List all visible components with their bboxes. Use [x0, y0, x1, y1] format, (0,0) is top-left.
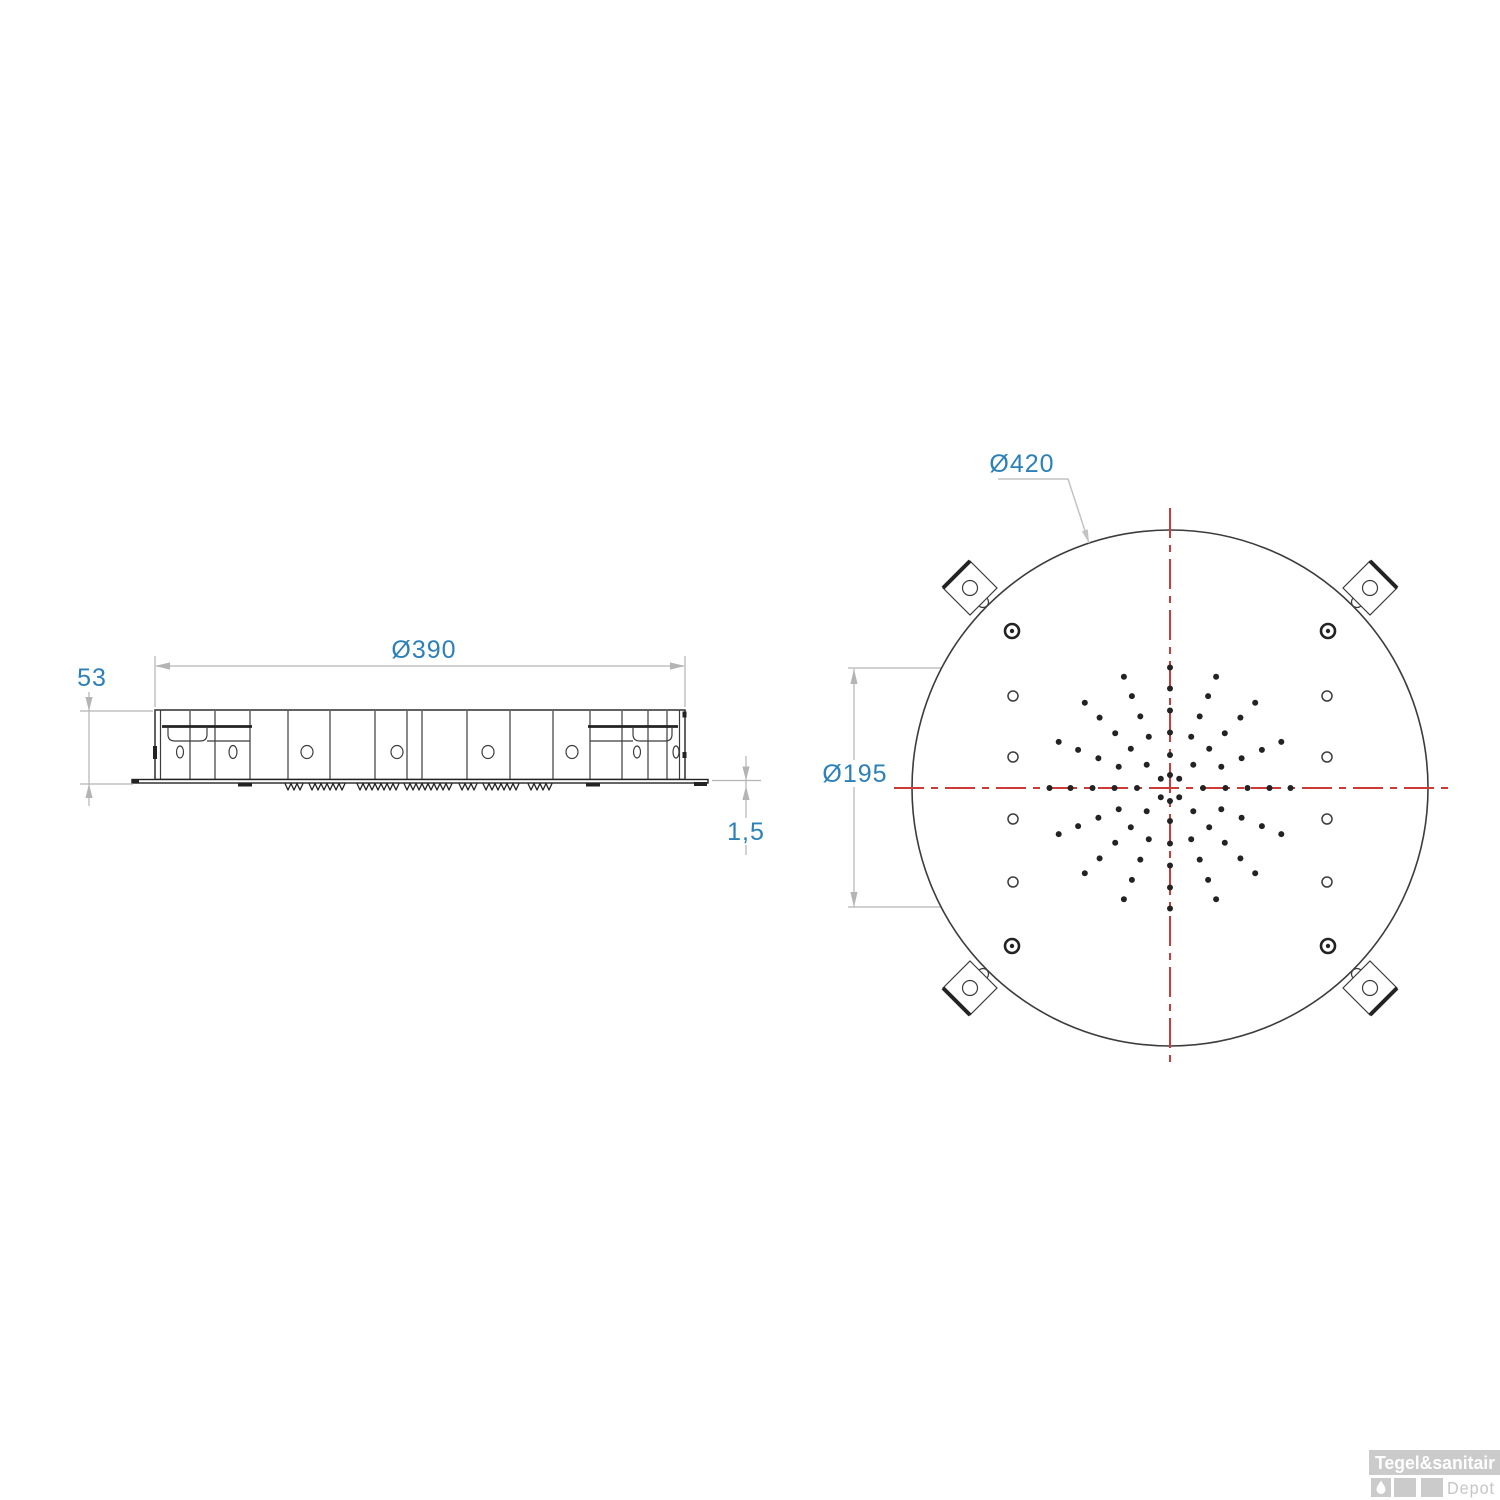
nozzle-dot — [1223, 785, 1229, 791]
watermark-brand: Tegel&sanitair — [1375, 1453, 1495, 1473]
flange-plate — [132, 780, 708, 784]
nozzle-tooth — [333, 784, 339, 791]
dim-height: 53 — [77, 664, 153, 806]
nozzle-dot — [1188, 734, 1194, 740]
nozzle-dot — [1144, 762, 1150, 768]
rivet-hole — [566, 746, 578, 759]
nozzle-tooth — [495, 784, 501, 791]
wall-tick-right — [683, 752, 687, 758]
nozzle-dot — [1237, 715, 1243, 721]
nozzle-dot — [1134, 785, 1140, 791]
nozzle-dot — [1146, 836, 1152, 842]
screw-hole — [1008, 877, 1018, 887]
dim-arrow-top — [742, 767, 749, 781]
dim-outer: Ø420 — [989, 450, 1089, 543]
rivet-hole — [177, 746, 184, 758]
nozzle-dot — [1239, 755, 1245, 761]
nozzle-dot — [1259, 747, 1265, 753]
watermark: Tegel&sanitair Depot — [1369, 1450, 1500, 1498]
dim-pattern: Ø195 — [820, 669, 890, 907]
nozzle-dot — [1112, 785, 1118, 791]
drawing-page: Ø390 53 1,5 — [0, 0, 1500, 1500]
nozzle-dot — [1288, 785, 1294, 791]
nozzle-dot — [1116, 764, 1122, 770]
nozzle-dot — [1213, 674, 1219, 680]
dim-arrow-bottom — [742, 786, 749, 800]
nozzle-dot — [1267, 785, 1273, 791]
fixing-hole-center — [1326, 944, 1330, 948]
nozzle-dot — [1245, 785, 1251, 791]
nozzle-dot — [1167, 863, 1173, 869]
nozzle-tooth — [285, 784, 291, 791]
nozzle-dot — [1218, 764, 1224, 770]
nozzle-dot — [1167, 818, 1173, 824]
rivet-hole — [482, 746, 494, 759]
nozzle-tooth — [363, 784, 369, 791]
screw-hole — [1008, 752, 1018, 762]
nozzle-tooth — [297, 784, 303, 791]
nozzle-tooth — [489, 784, 495, 791]
wall-tick-right-top — [683, 712, 687, 718]
nozzle-dot — [1095, 815, 1101, 821]
nozzle-dot — [1082, 870, 1088, 876]
nozzle-dot — [1206, 746, 1212, 752]
bracket-hole — [1363, 581, 1378, 596]
nozzle-tooth — [507, 784, 513, 791]
nozzle-dot — [1075, 823, 1081, 829]
dim-plate-thickness: 1,5 — [712, 756, 765, 855]
nozzle-tooth — [315, 784, 321, 791]
nozzle-dot — [1128, 824, 1134, 830]
screw-hole — [1008, 691, 1018, 701]
nozzle-dot — [1116, 806, 1122, 812]
nozzle-tooth — [327, 784, 333, 791]
dim-arrow-right — [670, 662, 685, 669]
dim-width: Ø390 — [155, 636, 685, 707]
watermark-product-line: Depot — [1447, 1478, 1495, 1498]
nozzle-dot — [1112, 730, 1118, 736]
nozzle-dot — [1239, 815, 1245, 821]
nozzle-dot — [1197, 713, 1203, 719]
rivet-hole — [634, 746, 641, 758]
nozzle-tooth — [375, 784, 381, 791]
nozzle-dot — [1252, 870, 1258, 876]
nozzle-tooth — [459, 784, 465, 791]
fixing-hole-center — [1010, 944, 1014, 948]
dim-arrow-left — [155, 662, 170, 669]
flange-tip-left — [132, 780, 139, 784]
nozzle-dot — [1144, 808, 1150, 814]
nozzle-dot — [1167, 798, 1173, 804]
top-view: Ø195 Ø420 — [820, 450, 1449, 1068]
nozzle-tooth — [446, 784, 452, 791]
nozzle-dot — [1188, 836, 1194, 842]
nozzle-dot — [1137, 857, 1143, 863]
nozzle-tooth — [434, 784, 440, 791]
nozzle-dot — [1218, 806, 1224, 812]
nozzle-dot — [1129, 877, 1135, 883]
nozzle-dot — [1237, 855, 1243, 861]
nozzle-dot — [1097, 715, 1103, 721]
nozzle-dot — [1146, 734, 1152, 740]
nozzle-dot — [1158, 776, 1164, 782]
nozzle-dot — [1167, 686, 1173, 692]
nozzle-dot — [1137, 713, 1143, 719]
dim-plate-label: 1,5 — [727, 818, 765, 846]
nozzle-dot — [1213, 896, 1219, 902]
dim-width-label: Ø390 — [391, 636, 456, 664]
nozzle-tooth — [369, 784, 375, 791]
nozzle-dot — [1167, 772, 1173, 778]
nozzle-tooth — [483, 784, 489, 791]
nozzle-dot — [1278, 831, 1284, 837]
screw-hole — [1322, 814, 1332, 824]
nozzle-tooth — [357, 784, 363, 791]
nozzle-tooth — [513, 784, 519, 791]
nozzle-dot — [1068, 785, 1074, 791]
nozzle-dot — [1097, 855, 1103, 861]
watermark-square — [1421, 1478, 1443, 1497]
nozzle-dot — [1190, 808, 1196, 814]
nozzle-dot — [1121, 896, 1127, 902]
side-view: Ø390 53 1,5 — [77, 636, 765, 855]
nozzle-tooth — [393, 784, 399, 791]
nozzle-dot — [1056, 831, 1062, 837]
nozzle-dot — [1197, 857, 1203, 863]
nozzle-dot — [1047, 785, 1053, 791]
nozzle-tooth — [422, 784, 428, 791]
dim-height-label: 53 — [77, 664, 107, 692]
watermark-square — [1394, 1478, 1416, 1497]
nozzle-dot — [1222, 840, 1228, 846]
nozzle-dot — [1095, 755, 1101, 761]
nozzle-dot — [1278, 739, 1284, 745]
body-outline — [155, 710, 685, 780]
leader-line — [998, 479, 1089, 543]
rivet-hole — [673, 746, 679, 758]
nozzle-dot — [1167, 841, 1173, 847]
nozzle-dot — [1259, 823, 1265, 829]
flange-tab-right — [586, 783, 600, 787]
wall-tick-left — [153, 746, 157, 759]
screw-hole — [1008, 814, 1018, 824]
nozzle-dot — [1082, 700, 1088, 706]
nozzle-dot — [1167, 708, 1173, 714]
nozzle-dot — [1200, 785, 1206, 791]
dim-arrow-bottom — [85, 784, 92, 798]
nozzle-tooth — [387, 784, 393, 791]
rivet-hole — [301, 746, 313, 759]
nozzle-dot — [1205, 693, 1211, 699]
dim-pattern-label: Ø195 — [822, 760, 887, 788]
bracket-hole — [963, 581, 978, 596]
nozzle-tooth — [528, 784, 534, 791]
nozzle-dot — [1206, 824, 1212, 830]
nozzle-dot — [1112, 840, 1118, 846]
nozzle-dot — [1252, 700, 1258, 706]
nozzle-tooth — [410, 784, 416, 791]
nozzle-dot — [1090, 785, 1096, 791]
bracket-hole — [963, 981, 978, 996]
bracket-hole — [1363, 981, 1378, 996]
nozzle-tooth — [501, 784, 507, 791]
fixing-hole-center — [1010, 629, 1014, 633]
screw-hole — [1322, 877, 1332, 887]
nozzle-tooth — [404, 784, 410, 791]
nozzle-dot — [1222, 730, 1228, 736]
nozzle-dot — [1167, 665, 1173, 671]
nozzle-dot — [1075, 747, 1081, 753]
nozzle-dot — [1176, 794, 1182, 800]
rivet-hole — [229, 746, 237, 759]
dim-arrow-top — [85, 697, 92, 711]
nozzle-dot — [1129, 693, 1135, 699]
nozzle-tooth — [416, 784, 422, 791]
nozzle-dot — [1167, 752, 1173, 758]
nozzle-dot — [1167, 906, 1173, 912]
dim-arrow-top — [850, 669, 857, 684]
flange-tab-left — [238, 783, 252, 787]
nozzle-tooth — [534, 784, 540, 791]
nozzle-dot — [1056, 739, 1062, 745]
nozzle-tooth — [339, 784, 345, 791]
nozzle-tooth — [321, 784, 327, 791]
leader-arrow — [1082, 529, 1089, 543]
nozzle-tooth — [428, 784, 434, 791]
flange-tip-right — [694, 782, 707, 786]
nozzle-dot — [1190, 762, 1196, 768]
nozzle-tooth — [465, 784, 471, 791]
nozzle-teeth-row — [285, 784, 552, 791]
nozzle-dot — [1205, 877, 1211, 883]
dim-arrow-bottom — [850, 892, 857, 907]
nozzle-tooth — [471, 784, 477, 791]
rivet-hole — [391, 746, 403, 759]
nozzle-dot — [1167, 730, 1173, 736]
nozzle-tooth — [381, 784, 387, 791]
nozzle-dot — [1167, 885, 1173, 891]
screw-hole — [1322, 752, 1332, 762]
nozzle-tooth — [309, 784, 315, 791]
nozzle-dot — [1128, 746, 1134, 752]
nozzle-dot — [1121, 674, 1127, 680]
technical-drawing-svg: Ø390 53 1,5 — [0, 0, 1500, 1500]
screw-hole — [1322, 691, 1332, 701]
nozzle-dot — [1158, 794, 1164, 800]
nozzle-tooth — [291, 784, 297, 791]
fixing-hole-center — [1326, 629, 1330, 633]
nozzle-tooth — [440, 784, 446, 791]
nozzle-dot — [1176, 776, 1182, 782]
dim-outer-label: Ø420 — [989, 450, 1054, 478]
nozzle-tooth — [546, 784, 552, 791]
nozzle-tooth — [540, 784, 546, 791]
